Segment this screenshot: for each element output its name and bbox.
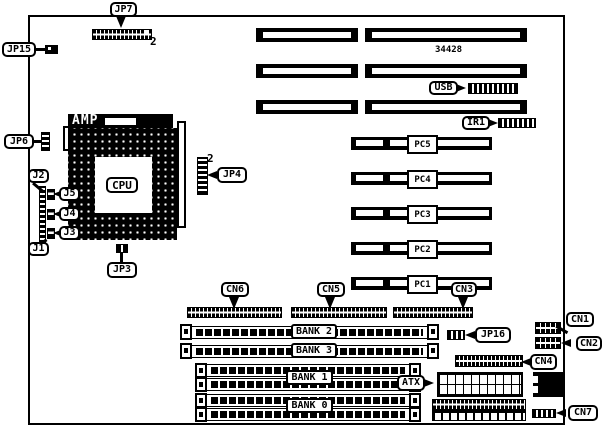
motherboard-diagram: JP7 2 JP15 34428 USB IR1 PC5 PC4 PC3 xyxy=(0,0,602,431)
clip-detail xyxy=(413,368,417,373)
callout-jp4: JP4 xyxy=(217,167,247,183)
atx-power-connector xyxy=(437,372,523,397)
callout-j5: J5 xyxy=(59,187,80,201)
cn7-pointer xyxy=(556,409,566,417)
j2-label: J2 xyxy=(32,171,44,181)
isa-slot-2-right xyxy=(365,64,527,78)
cn2-connector xyxy=(535,337,561,349)
bank0-clip-right-b xyxy=(409,407,421,422)
bank0-clip-left-b xyxy=(195,407,207,422)
callout-cn2: CN2 xyxy=(576,336,602,351)
pci-opening xyxy=(434,245,489,251)
jp7-connector xyxy=(92,29,152,40)
pci-opening xyxy=(390,280,407,286)
bank2-clip-right xyxy=(427,324,439,340)
isa-slot-opening xyxy=(372,68,520,74)
pci-opening xyxy=(356,175,383,181)
pci-slot-pc5: PC5 xyxy=(351,137,492,150)
isa-slot-opening xyxy=(372,32,520,38)
jp4-pointer xyxy=(207,171,217,179)
jp16-label: JP16 xyxy=(481,330,505,340)
pc4-label: PC4 xyxy=(407,170,438,189)
isa-slot-3-left xyxy=(256,100,358,114)
pci-slot-pc2: PC2 xyxy=(351,242,492,255)
callout-j2: J2 xyxy=(28,169,49,183)
callout-jp3: JP3 xyxy=(107,262,137,278)
cn5-pointer xyxy=(325,297,335,309)
jp6-pointer xyxy=(33,140,42,143)
clip-detail xyxy=(431,329,435,334)
callout-j1: J1 xyxy=(28,242,49,256)
cn6-label: CN6 xyxy=(226,285,244,295)
j2-j1-pin-strip xyxy=(39,186,46,244)
isa-slot-opening xyxy=(263,104,351,110)
clip-detail xyxy=(184,329,188,334)
clip-detail xyxy=(431,348,435,353)
isa-slot-opening xyxy=(372,104,520,110)
atx-pointer xyxy=(424,379,434,387)
bank1-clip-left-a xyxy=(195,363,207,378)
clip-detail xyxy=(199,368,203,373)
socket-tab xyxy=(63,126,70,151)
pci-slot-pc3: PC3 xyxy=(351,207,492,220)
cn7-label: CN7 xyxy=(574,408,592,418)
amp-window xyxy=(105,118,136,125)
jp15-connector xyxy=(45,45,58,54)
isa-slot-3-right xyxy=(365,100,527,114)
pci-opening xyxy=(356,140,383,146)
cn2-pointer xyxy=(561,339,571,347)
ir1-connector xyxy=(498,118,536,128)
power-header-top xyxy=(432,399,526,410)
power-header-bottom xyxy=(432,410,526,421)
bank2-clip-left xyxy=(180,324,192,340)
callout-usb: USB xyxy=(429,81,458,95)
clip-detail xyxy=(199,382,203,387)
cpu-chip: CPU xyxy=(106,177,138,193)
jp15-pin-marker xyxy=(48,47,51,50)
bank1-clip-left-b xyxy=(195,377,207,392)
isa-slot-opening xyxy=(263,32,351,38)
callout-j3: J3 xyxy=(59,226,80,240)
jp6-label: JP6 xyxy=(10,137,28,147)
jp15-label: JP15 xyxy=(7,45,31,55)
cn3-label: CN3 xyxy=(455,285,473,295)
cn3-pointer xyxy=(458,297,468,309)
jp7-pin1-marker xyxy=(144,30,148,34)
jp15-pointer xyxy=(35,48,45,51)
callout-atx: ATX xyxy=(397,375,425,391)
callout-ir1: IR1 xyxy=(462,116,490,130)
usb-label: USB xyxy=(434,83,452,93)
bank0-clip-right-a xyxy=(409,393,421,408)
callout-cn4: CN4 xyxy=(530,354,557,370)
jp7-label: JP7 xyxy=(114,5,132,15)
callout-cn1: CN1 xyxy=(566,312,594,327)
callout-jp7: JP7 xyxy=(110,2,137,17)
clip-detail xyxy=(199,412,203,417)
keyboard-notch xyxy=(533,386,538,393)
jp16-pointer xyxy=(465,331,475,339)
jp3-label: JP3 xyxy=(113,265,131,275)
bank0-clip-left-a xyxy=(195,393,207,408)
cn6-pointer xyxy=(229,297,239,309)
amp-chip: AMP xyxy=(68,114,173,128)
isa-slot-2-left xyxy=(256,64,358,78)
pci-opening xyxy=(356,210,383,216)
pci-opening xyxy=(390,245,407,251)
clip-detail xyxy=(184,348,188,353)
isa-slot-1-left xyxy=(256,28,358,42)
jp7-pointer xyxy=(116,16,126,28)
isa-slot-1-right xyxy=(365,28,527,42)
callout-jp15: JP15 xyxy=(2,42,36,57)
cn5-label: CN5 xyxy=(322,285,340,295)
usb-connector xyxy=(468,83,518,94)
amp-label: AMP xyxy=(72,113,98,128)
keyboard-connector xyxy=(533,372,564,397)
bank2-label: BANK 2 xyxy=(291,324,337,339)
clip-detail xyxy=(413,412,417,417)
jp6-connector xyxy=(41,132,50,151)
keyboard-notch xyxy=(533,376,538,383)
j4-label: J4 xyxy=(63,209,75,219)
pci-opening xyxy=(390,140,407,146)
bank0-label: BANK 0 xyxy=(286,398,333,413)
zif-lever-bar xyxy=(177,121,186,228)
callout-jp6: JP6 xyxy=(4,134,34,149)
pci-slot-pc4: PC4 xyxy=(351,172,492,185)
callout-cn7: CN7 xyxy=(568,405,598,421)
clip-detail xyxy=(199,398,203,403)
atx-label: ATX xyxy=(402,378,420,388)
cn2-label: CN2 xyxy=(580,339,598,349)
pci-opening xyxy=(434,175,489,181)
bank1-label: BANK 1 xyxy=(286,370,333,385)
callout-cn5: CN5 xyxy=(317,282,345,297)
part-number-text: 34428 xyxy=(435,45,462,55)
pci-opening xyxy=(356,245,383,251)
jp3-connector xyxy=(116,244,128,253)
callout-j4: J4 xyxy=(59,207,80,221)
jp4-label: JP4 xyxy=(223,170,241,180)
cn5-connector xyxy=(291,307,387,318)
jp4-pin2-text: 2 xyxy=(207,153,214,164)
pc5-label: PC5 xyxy=(407,135,438,154)
bank3-clip-right xyxy=(427,343,439,359)
callout-jp16: JP16 xyxy=(475,327,511,343)
cn7-connector xyxy=(532,409,556,418)
pci-opening xyxy=(434,140,489,146)
jp7-pin2-text: 2 xyxy=(150,36,157,47)
cn4-connector xyxy=(455,355,523,367)
callout-cn3: CN3 xyxy=(451,282,477,297)
pci-opening xyxy=(356,280,383,286)
isa-slot-opening xyxy=(263,68,351,74)
pc1-label: PC1 xyxy=(407,275,438,294)
pci-opening xyxy=(390,210,407,216)
ir1-label: IR1 xyxy=(467,118,485,128)
bank3-clip-left xyxy=(180,343,192,359)
cn1-label: CN1 xyxy=(571,315,589,325)
pc3-label: PC3 xyxy=(407,205,438,224)
cpu-label: CPU xyxy=(112,180,132,191)
cn4-label: CN4 xyxy=(534,357,552,367)
j3-label: J3 xyxy=(63,228,75,238)
jp16-connector xyxy=(447,330,465,340)
j5-label: J5 xyxy=(63,189,75,199)
pc2-label: PC2 xyxy=(407,240,438,259)
bank3-label: BANK 3 xyxy=(291,343,337,358)
pci-opening xyxy=(390,175,407,181)
j1-label: J1 xyxy=(32,244,44,254)
pci-opening xyxy=(434,210,489,216)
callout-cn6: CN6 xyxy=(221,282,249,297)
clip-detail xyxy=(413,398,417,403)
